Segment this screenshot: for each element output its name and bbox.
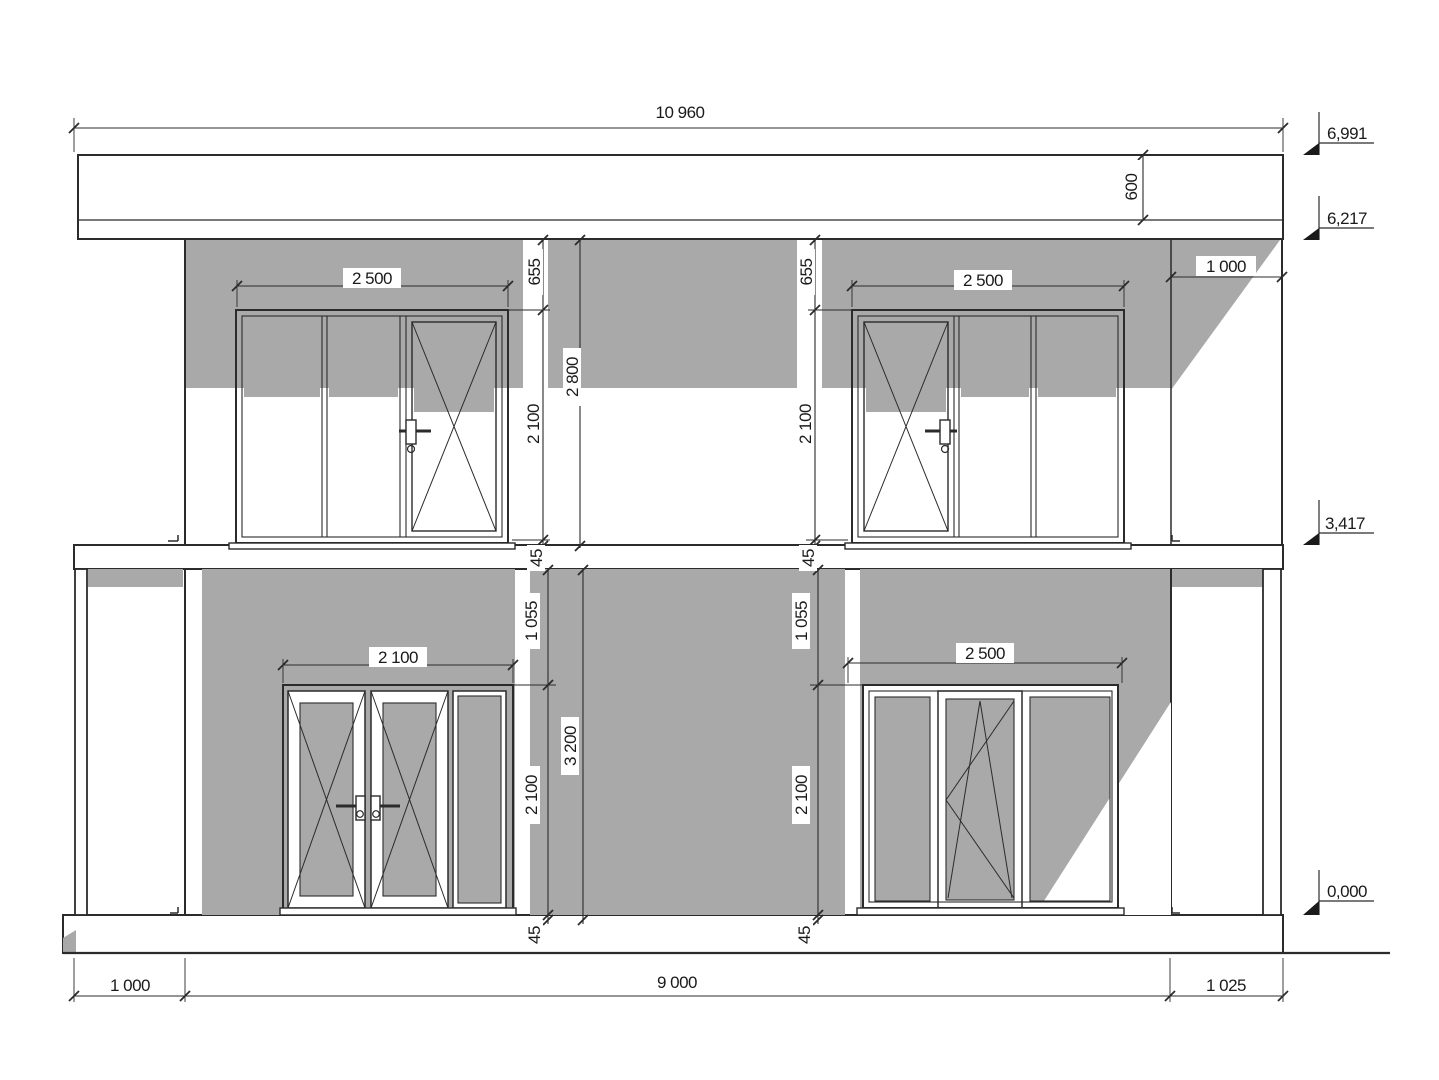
elevation-marker-ground: 0,000 xyxy=(1303,870,1374,915)
dim-label-door-height: 2 100 xyxy=(522,775,541,815)
dim-label-bottom-left: 1 000 xyxy=(110,976,150,995)
dim-label-upper-right-window-width: 2 500 xyxy=(963,271,1003,290)
dim-label-upper-left-window-height: 2 100 xyxy=(524,404,543,444)
elevation-value: 0,000 xyxy=(1327,882,1367,901)
entrance-double-door xyxy=(280,685,516,915)
dim-label-lower-right-gap: 45 xyxy=(795,926,814,944)
corner-column-right xyxy=(1263,569,1281,915)
elevation-drawing: 10 960 600 1 000 2 500 2 500 655 655 2 1… xyxy=(0,0,1439,1080)
elevation-marker-roof-top: 6,991 xyxy=(1303,112,1374,155)
glass-shadow xyxy=(961,318,1029,397)
elevation-marker-floor2: 3,417 xyxy=(1303,500,1374,545)
glass-shadow xyxy=(329,318,398,397)
glass-shadow xyxy=(1038,318,1116,397)
elevation-value: 6,217 xyxy=(1327,209,1367,228)
dim-label-lower-floor-height: 3 200 xyxy=(561,726,580,766)
roof-slab xyxy=(78,155,1283,239)
dim-label-lower-left-gap: 45 xyxy=(525,926,544,944)
dim-label-upper-right-window-height: 2 100 xyxy=(796,404,815,444)
plinth-base xyxy=(63,915,1283,953)
dim-label-bottom-center: 9 000 xyxy=(657,973,697,992)
door-handle-knob xyxy=(408,446,415,453)
door-side-panel-inner xyxy=(458,696,501,903)
elevation-arrow-icon xyxy=(1303,228,1319,240)
glass-shadow xyxy=(946,699,1014,900)
door-handle-plate xyxy=(406,420,416,444)
porch-soffit-shadow-right xyxy=(1172,569,1263,587)
window-sill xyxy=(229,543,515,549)
porch-soffit-shadow-left xyxy=(88,569,183,587)
glass-shadow xyxy=(244,318,320,397)
dim-label-lower-left-offset: 1 055 xyxy=(522,601,541,641)
dim-label-fascia-height: 600 xyxy=(1122,174,1141,201)
window-sill xyxy=(845,543,1131,549)
dim-label-upper-right-offset: 655 xyxy=(797,259,816,286)
elevation-arrow-icon xyxy=(1303,143,1319,155)
elevation-arrow-icon xyxy=(1303,901,1319,915)
dim-label-upper-floor-height: 2 800 xyxy=(563,357,582,397)
glass-shadow xyxy=(875,697,930,901)
dim-label-upper-left-offset: 655 xyxy=(525,259,544,286)
elevation-marker-wall-top: 6,217 xyxy=(1303,196,1374,240)
glass-shadow xyxy=(866,324,946,412)
dim-label-upper-left-window-width: 2 500 xyxy=(352,269,392,288)
glass-shadow xyxy=(414,324,494,412)
dim-label-recess-width: 1 000 xyxy=(1206,257,1246,276)
dim-label-bottom-right: 1 025 xyxy=(1206,976,1246,995)
elevation-value: 3,417 xyxy=(1325,514,1365,533)
window-sill xyxy=(857,908,1124,915)
corner-column-left xyxy=(75,569,87,915)
dim-label-lower-right-offset: 1 055 xyxy=(792,601,811,641)
dim-label-total-width: 10 960 xyxy=(656,103,705,122)
dim-label-upper-left-gap: 45 xyxy=(527,549,546,567)
elevation-value: 6,991 xyxy=(1327,124,1367,143)
door-threshold xyxy=(280,908,516,915)
dim-label-lower-window-height: 2 100 xyxy=(792,775,811,815)
elevation-arrow-icon xyxy=(1303,533,1319,545)
elevation-markers: 6,991 6,217 3,417 0,000 xyxy=(1303,112,1374,915)
dim-label-lower-window-width: 2 500 xyxy=(965,644,1005,663)
dim-label-upper-right-gap: 45 xyxy=(799,549,818,567)
second-floor-shadows xyxy=(186,240,1280,412)
dim-label-door-width: 2 100 xyxy=(378,648,418,667)
elevation-drawing-sheet: 10 960 600 1 000 2 500 2 500 655 655 2 1… xyxy=(0,0,1439,1080)
door-handle-plate xyxy=(940,420,950,444)
